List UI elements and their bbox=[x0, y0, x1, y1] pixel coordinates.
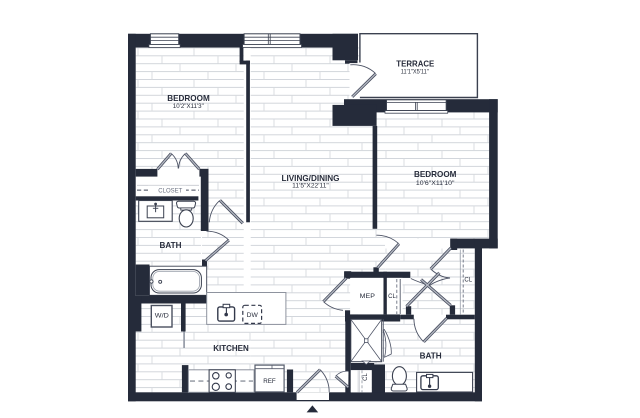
svg-text:10'6"X11'10": 10'6"X11'10" bbox=[416, 181, 455, 187]
svg-text:BEDROOM: BEDROOM bbox=[167, 93, 210, 103]
svg-text:BATH: BATH bbox=[160, 240, 182, 250]
svg-text:KITCHEN: KITCHEN bbox=[213, 343, 249, 353]
svg-text:REF: REF bbox=[263, 378, 276, 385]
svg-text:LIVING/DINING: LIVING/DINING bbox=[282, 173, 340, 183]
svg-text:11'1"X5'11": 11'1"X5'11" bbox=[401, 69, 429, 75]
svg-text:CL: CL bbox=[388, 294, 396, 300]
svg-text:MEP: MEP bbox=[360, 293, 376, 300]
svg-text:DW: DW bbox=[247, 312, 259, 319]
svg-text:10'2"X11'3": 10'2"X11'3" bbox=[173, 104, 204, 110]
svg-text:11'5"X22'11": 11'5"X22'11" bbox=[292, 184, 329, 190]
svg-text:BEDROOM: BEDROOM bbox=[414, 169, 457, 179]
svg-text:CLOSET: CLOSET bbox=[158, 188, 182, 194]
svg-text:BATH: BATH bbox=[420, 351, 442, 361]
svg-text:W/D: W/D bbox=[155, 314, 170, 320]
svg-text:CL: CL bbox=[464, 277, 472, 283]
svg-text:TERRACE: TERRACE bbox=[396, 58, 434, 68]
svg-text:CL: CL bbox=[363, 373, 369, 381]
